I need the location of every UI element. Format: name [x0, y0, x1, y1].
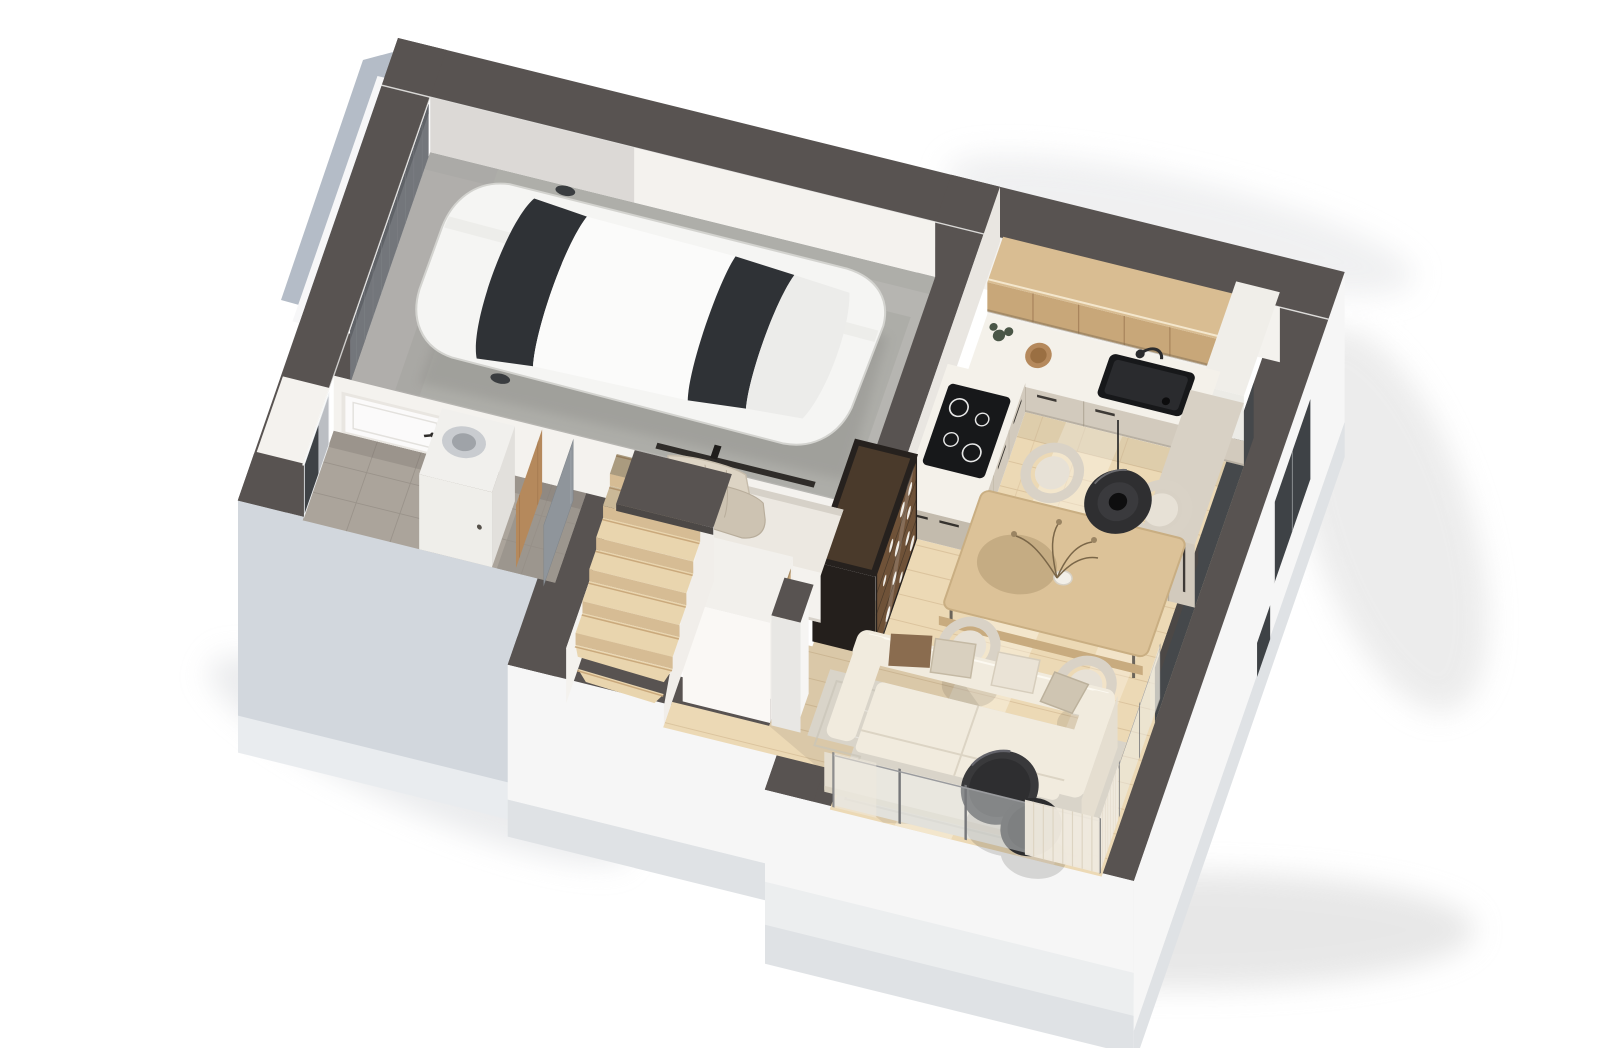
floor-plan-stage	[0, 0, 1600, 1048]
floor-plan-rendering	[0, 0, 1600, 1048]
